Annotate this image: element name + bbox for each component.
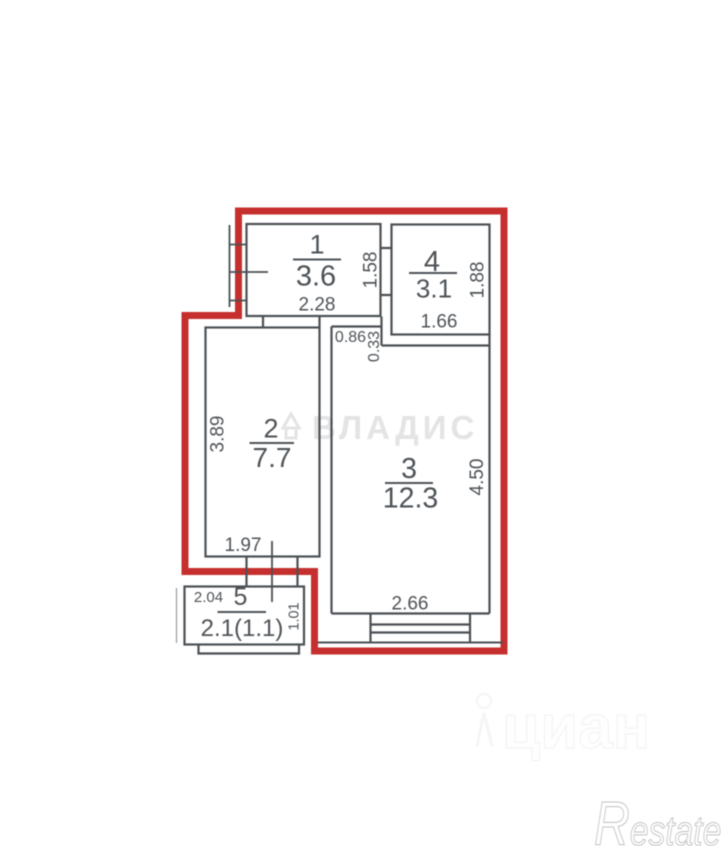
svg-text:1.66: 1.66 [421, 312, 458, 333]
svg-text:1.01: 1.01 [287, 602, 303, 630]
svg-text:4.50: 4.50 [467, 459, 488, 496]
svg-text:2: 2 [263, 414, 278, 444]
svg-text:циан: циан [502, 693, 650, 762]
svg-text:1.97: 1.97 [225, 535, 262, 556]
svg-text:7.7: 7.7 [253, 442, 292, 473]
svg-text:2.66: 2.66 [392, 594, 429, 615]
svg-text:12.3: 12.3 [383, 483, 438, 515]
svg-text:ВЛАДИС: ВЛАДИС [312, 409, 478, 446]
svg-text:2.28: 2.28 [299, 295, 336, 316]
svg-text:0.33: 0.33 [366, 331, 383, 362]
svg-text:0.86: 0.86 [335, 329, 366, 346]
svg-text:3: 3 [401, 453, 417, 485]
svg-text:2.1(1.1): 2.1(1.1) [201, 615, 284, 642]
svg-text:5: 5 [234, 583, 248, 611]
svg-text:1: 1 [309, 230, 324, 260]
svg-text:1.58: 1.58 [361, 252, 382, 289]
svg-text:3.1: 3.1 [416, 274, 452, 304]
svg-text:1.88: 1.88 [468, 262, 489, 299]
svg-text:3.89: 3.89 [208, 416, 229, 453]
svg-text:2.04: 2.04 [194, 589, 223, 606]
svg-text:3.6: 3.6 [296, 260, 336, 292]
